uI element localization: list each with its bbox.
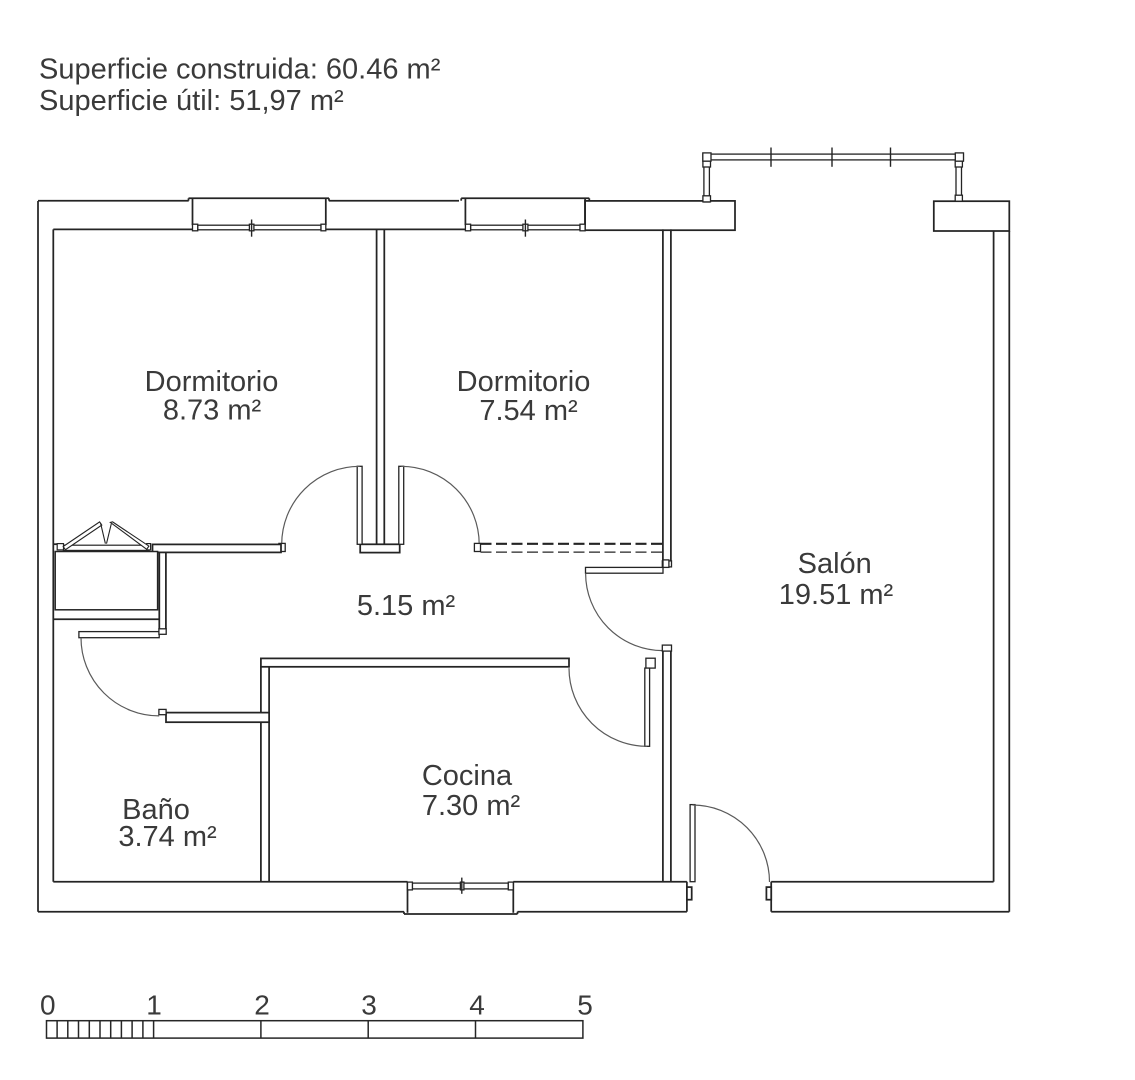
svg-text:7.30 m²: 7.30 m² [422, 790, 521, 822]
svg-text:8.73 m²: 8.73 m² [163, 395, 262, 427]
svg-text:5: 5 [577, 990, 593, 1021]
svg-text:2: 2 [254, 990, 270, 1021]
svg-text:3.74 m²: 3.74 m² [118, 821, 217, 853]
svg-text:7.54 m²: 7.54 m² [479, 395, 578, 427]
svg-text:1: 1 [146, 990, 162, 1021]
svg-text:Cocina: Cocina [422, 760, 513, 792]
svg-text:3: 3 [361, 990, 377, 1021]
svg-text:Superficie construida: 60.46 m: Superficie construida: 60.46 m² [39, 54, 441, 86]
svg-text:0: 0 [40, 990, 56, 1021]
svg-text:Dormitorio: Dormitorio [145, 366, 279, 398]
svg-text:Superficie útil: 51,97 m²: Superficie útil: 51,97 m² [39, 85, 344, 117]
svg-text:Dormitorio: Dormitorio [457, 366, 591, 398]
svg-text:Salón: Salón [798, 548, 872, 580]
svg-text:19.51 m²: 19.51 m² [779, 579, 894, 611]
svg-text:4: 4 [469, 990, 485, 1021]
svg-text:5.15 m²: 5.15 m² [357, 590, 456, 622]
